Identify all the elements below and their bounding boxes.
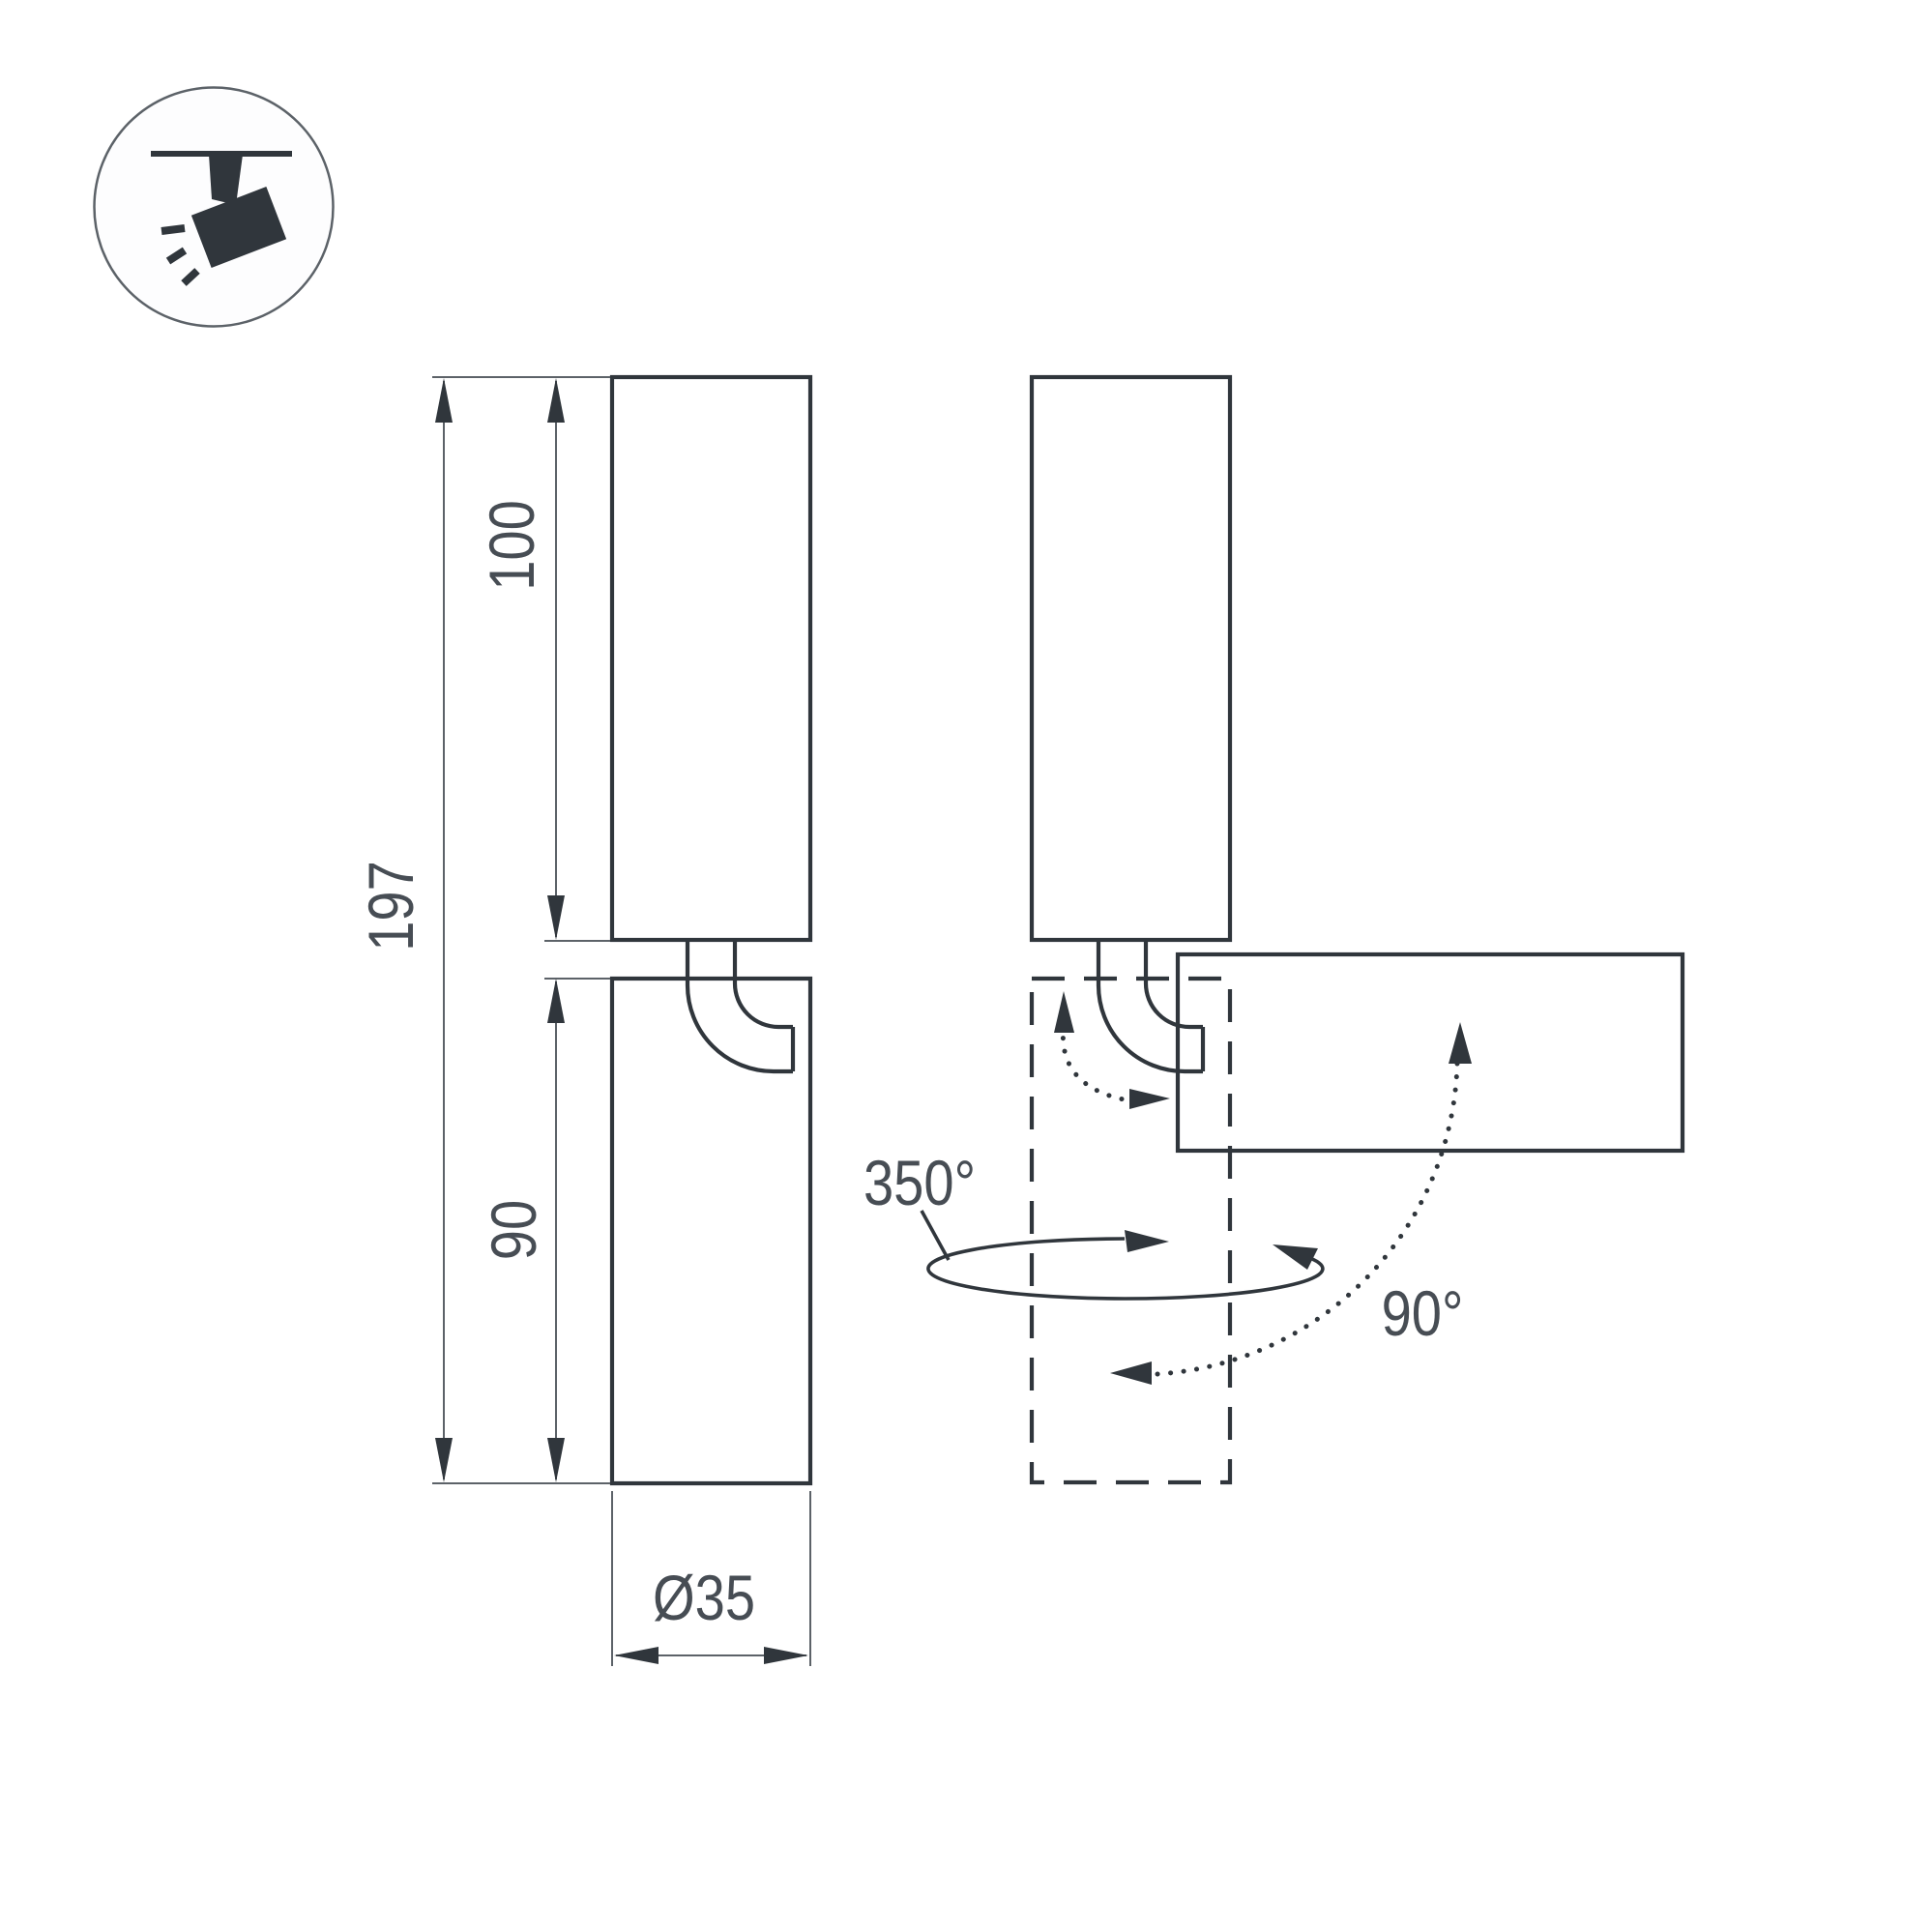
front-view-dimensions: 197 100 90 Ø35	[356, 377, 810, 1666]
arrowhead-down	[435, 1438, 453, 1482]
head-rotated-body	[1178, 954, 1683, 1151]
arrowhead-down	[547, 895, 565, 940]
arrowhead-right	[764, 1647, 808, 1664]
side-upper-body	[1032, 377, 1230, 940]
pan-arrowhead-cw	[1125, 1230, 1169, 1252]
front-elbow-inner	[735, 940, 793, 1027]
front-lower-body	[612, 979, 810, 1483]
tilt-large-arrowhead-up	[1449, 1022, 1472, 1064]
light-ray-icon	[161, 228, 185, 231]
tilt-angle-label: 90°	[1382, 1278, 1464, 1349]
dim-label-total-height: 197	[356, 861, 426, 951]
drawing-canvas: 197 100 90 Ø35 350° 90°	[0, 0, 1932, 1932]
rotation-view	[1032, 377, 1683, 1482]
arrowhead-up	[435, 378, 453, 423]
arrowhead-down	[547, 1438, 565, 1482]
dim-label-diameter: Ø35	[653, 1563, 755, 1633]
arrowhead-up	[547, 378, 565, 423]
track-spotlight-icon	[95, 88, 334, 327]
pan-angle-label: 350°	[864, 1148, 976, 1218]
tilt-large-arrowhead-left	[1110, 1361, 1152, 1385]
pan-arrowhead-ccw	[1273, 1244, 1318, 1270]
arrowhead-up	[547, 979, 565, 1023]
front-view	[612, 377, 810, 1483]
arrowhead-left	[614, 1647, 659, 1664]
tilt-small-arrowhead-right	[1129, 1089, 1170, 1109]
front-upper-body	[612, 377, 810, 940]
rotation-annotations: 350° 90°	[864, 991, 1472, 1385]
tilt-small-arrowhead-up	[1054, 991, 1074, 1033]
dim-label-body-height: 100	[477, 500, 547, 591]
pan-rotation-arc	[928, 1239, 1323, 1299]
dim-label-head-height: 90	[479, 1200, 549, 1260]
